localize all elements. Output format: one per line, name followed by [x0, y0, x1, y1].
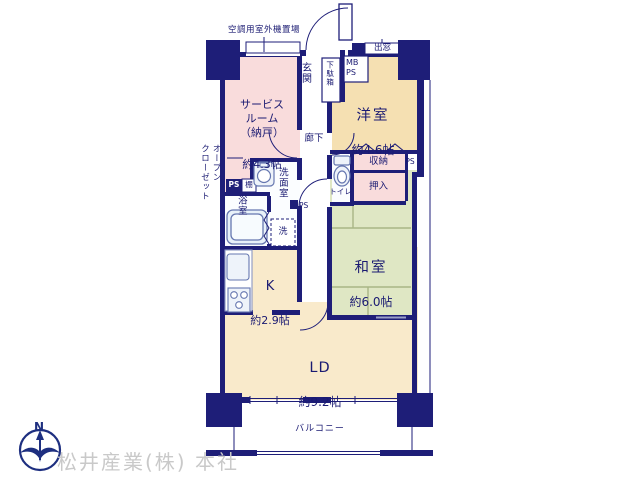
service-room-name: サービス ルーム （納戸） [226, 98, 298, 139]
living-dining-name: LD [282, 360, 358, 377]
ps-top-label: PS [403, 158, 417, 167]
balcony-label: バルコニー [283, 424, 357, 434]
compass-north-label: N [34, 420, 44, 434]
japanese-room-name: 和室 [330, 260, 412, 277]
western-room-name: 洋室 [330, 108, 416, 125]
bathroom-label: 浴室 [235, 195, 246, 216]
corridor-label: 廊下 [301, 134, 327, 145]
japanese-room-label: 和室 約6.0帖 [330, 242, 412, 329]
laundry-label: 洗 [271, 219, 295, 246]
washroom-label: 洗面室 [276, 167, 287, 199]
ps-small-label: PS [299, 202, 308, 211]
compass-icon: N [20, 420, 60, 470]
shelf-label: 棚 [242, 179, 256, 192]
entrance-label: 玄関 [299, 62, 311, 84]
closet-label: 収納 [352, 157, 405, 168]
meter-box-label: MB PS [346, 58, 358, 77]
balcony-edge-right [380, 450, 433, 456]
shoe-box-label: 下駄箱 [325, 61, 334, 87]
kitchen-size: 約2.9帖 [238, 315, 302, 328]
corridor-area [300, 97, 327, 302]
open-closet-label: オープン クローゼット [198, 144, 221, 201]
bay-window-label: 出窓 [365, 44, 400, 54]
living-dining-size: 約9.2帖 [282, 396, 358, 410]
kitchen-label: K 約2.9帖 [238, 262, 302, 346]
living-dining-label: LD 約9.2帖 [282, 342, 358, 429]
kitchen-name: K [238, 280, 302, 295]
toilet-label: トイレ [327, 188, 354, 197]
bathtub-icon [227, 210, 267, 244]
floor-plan-canvas: N 空調用室外機置場 サービス ルーム （納戸） 約4.3帖 洋室 約4.6帖 … [0, 0, 640, 480]
ac-space-label: 空調用室外機置場 [226, 26, 302, 36]
oshiire-label: 押入 [352, 182, 405, 193]
company-watermark: 松井産業(株) 本社 [57, 446, 239, 475]
ps-mid-label: PS [226, 179, 242, 192]
japanese-room-size: 約6.0帖 [330, 296, 412, 310]
